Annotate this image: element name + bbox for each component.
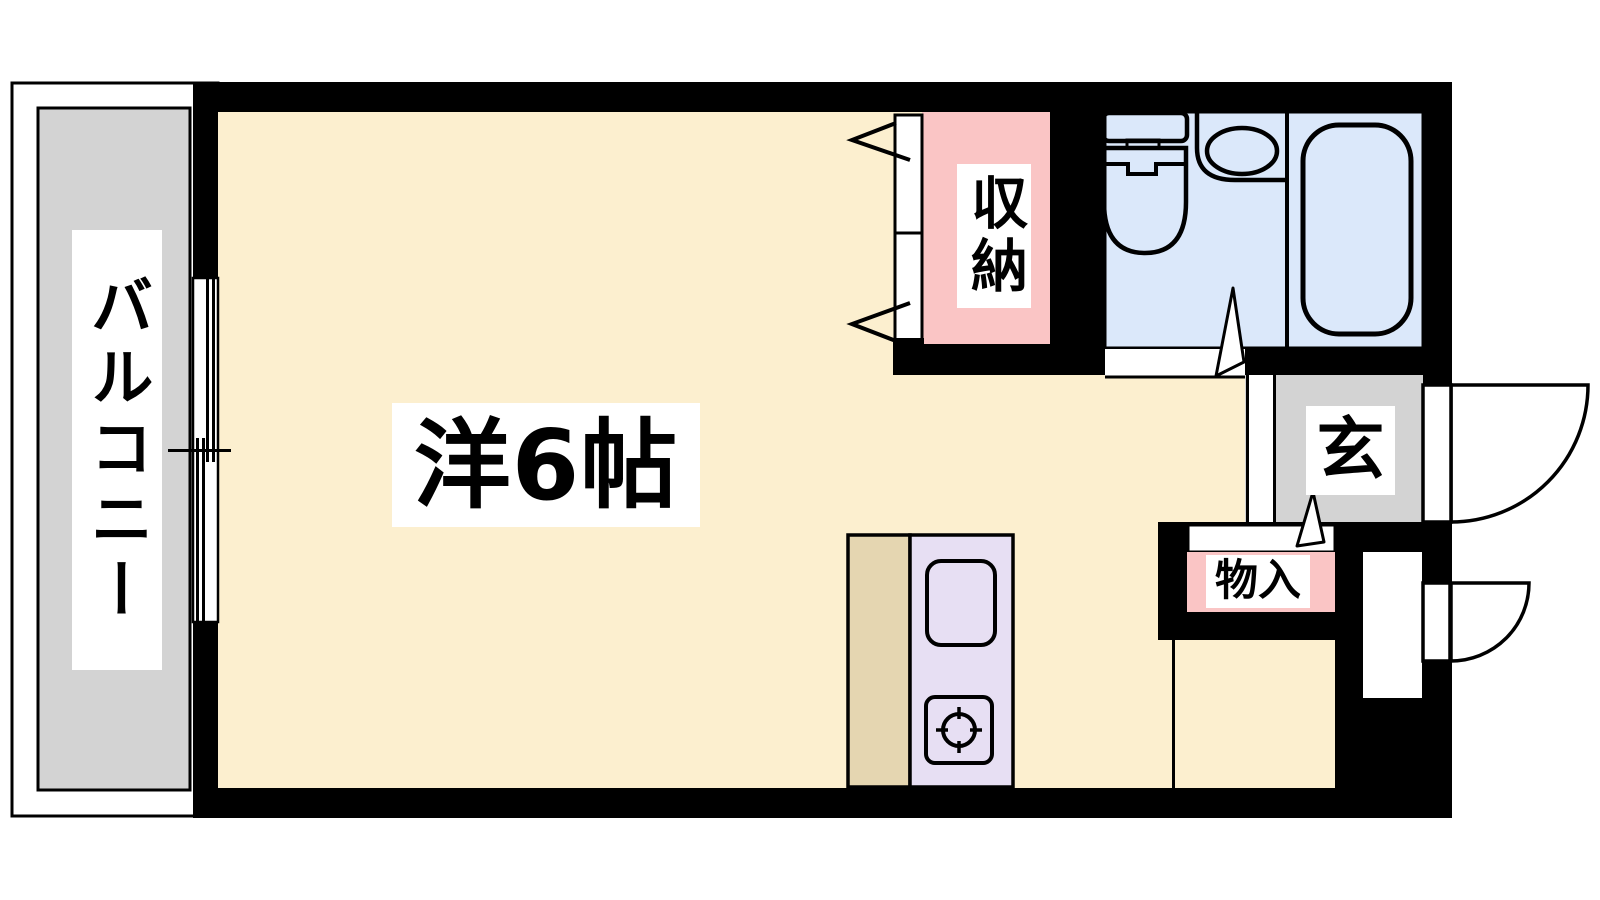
wall-bottom — [193, 788, 1452, 818]
wall-right-upper — [1423, 82, 1452, 385]
wall-closet-bottom — [893, 344, 1105, 375]
wall-closet-right — [1050, 112, 1105, 375]
wall-top — [193, 82, 1452, 112]
wall-left-upper — [193, 82, 218, 280]
entrance-door-swing-icon — [1423, 385, 1588, 522]
floor-plan: バルコニー 洋6帖 収納 玄 物入 — [0, 0, 1600, 900]
closet-label: 収納 — [957, 164, 1031, 308]
main-room-label: 洋6帖 — [392, 403, 700, 527]
utility-niche — [1363, 552, 1422, 698]
storage-label: 物入 — [1206, 555, 1310, 608]
balcony-label: バルコニー — [72, 230, 162, 670]
entrance-inner-door — [1248, 375, 1274, 522]
service-door-swing-icon — [1423, 583, 1529, 661]
kitchen-counter — [848, 535, 910, 787]
wall-storage-bottom — [1158, 612, 1340, 640]
entrance-label: 玄 — [1306, 406, 1395, 495]
wall-bath-bottom — [1245, 347, 1452, 375]
